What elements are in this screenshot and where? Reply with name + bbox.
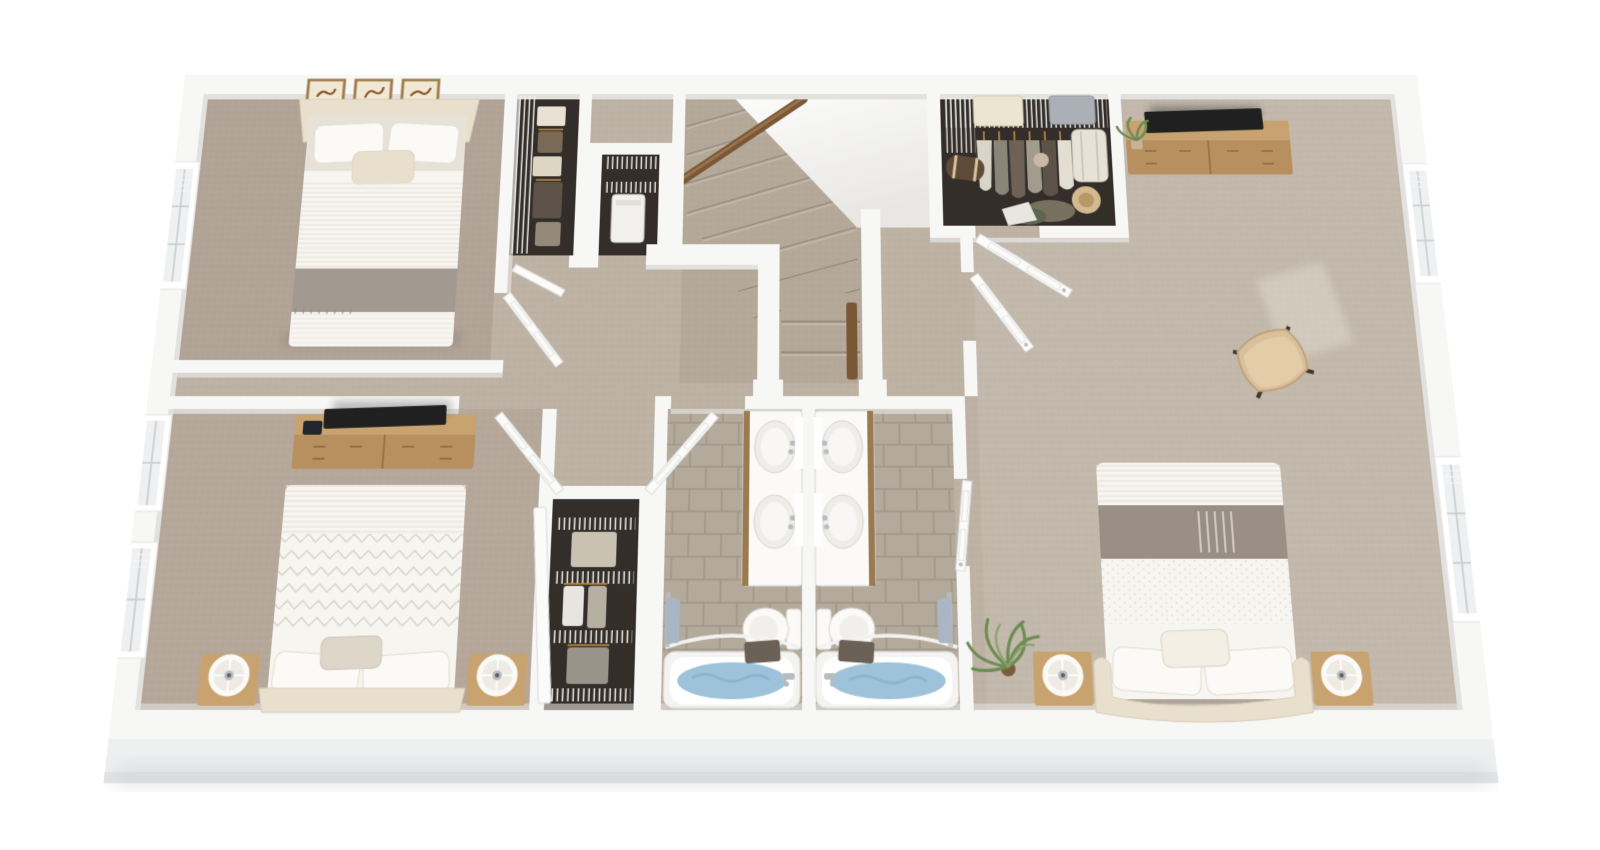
folded-blanket — [1096, 463, 1283, 506]
towel-ring-left — [664, 592, 680, 647]
linen-stack-gray — [1049, 96, 1096, 124]
bedroom-top-left — [276, 80, 480, 346]
floorplan-svg — [102, 75, 1499, 792]
bed-top-left — [276, 99, 479, 346]
nightstand-master-right — [1310, 652, 1374, 706]
closet-bed2-contents — [511, 96, 567, 254]
mirror-cabinet — [814, 417, 822, 469]
vanity-right — [814, 411, 875, 586]
gray-throw — [1098, 505, 1288, 559]
nightstand-master-left — [1033, 652, 1094, 706]
foundation-slab — [102, 739, 1499, 786]
mirror-cabinet — [795, 493, 803, 546]
floorplan-stage — [0, 0, 1600, 850]
book — [302, 421, 322, 435]
linen-stack-cream — [973, 96, 1023, 126]
towel-ring-right — [937, 592, 953, 647]
bed-bottom-left — [257, 485, 476, 712]
stair-lower-rail — [846, 302, 858, 379]
dark-towel — [838, 640, 875, 664]
nightstand-left — [197, 654, 261, 706]
nightstand-right — [466, 654, 527, 706]
bed-master — [1084, 463, 1314, 722]
vanity-left — [742, 411, 803, 586]
tv-flatscreen — [1144, 108, 1264, 133]
folded-blanket — [281, 485, 466, 534]
chevron-duvet — [273, 534, 464, 632]
floorplan-3d-container — [102, 75, 1499, 792]
bed-throw-blanket — [291, 269, 457, 312]
dark-towel — [744, 640, 781, 664]
mirror-cabinet — [814, 493, 822, 546]
mirror-cabinet — [795, 417, 803, 469]
suitcase — [1071, 130, 1108, 182]
folded-plaid-blanket — [571, 532, 617, 567]
